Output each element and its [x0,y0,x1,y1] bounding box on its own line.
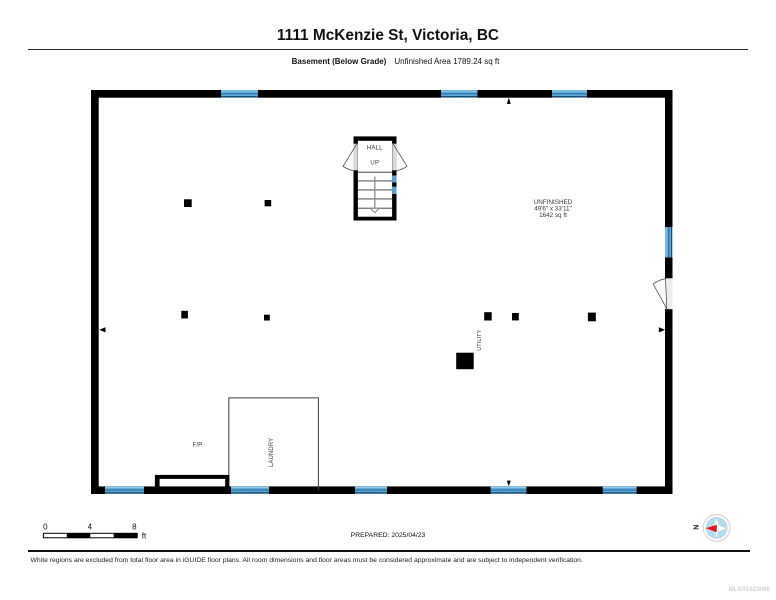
svg-text:ft: ft [142,532,147,541]
svg-text:UTILITY: UTILITY [477,329,483,350]
svg-text:8: 8 [132,523,137,532]
svg-text:HALL: HALL [367,146,383,152]
svg-text:1642 sq ft: 1642 sq ft [539,212,567,219]
svg-text:PREPARED: 2025/04/23: PREPARED: 2025/04/23 [351,532,426,539]
svg-text:UP: UP [370,161,379,167]
svg-text:0: 0 [43,523,48,532]
svg-text:LAUNDRY: LAUNDRY [269,438,275,467]
svg-text:F/P: F/P [193,441,203,448]
svg-text:N: N [694,525,701,530]
svg-text:4: 4 [88,523,93,532]
